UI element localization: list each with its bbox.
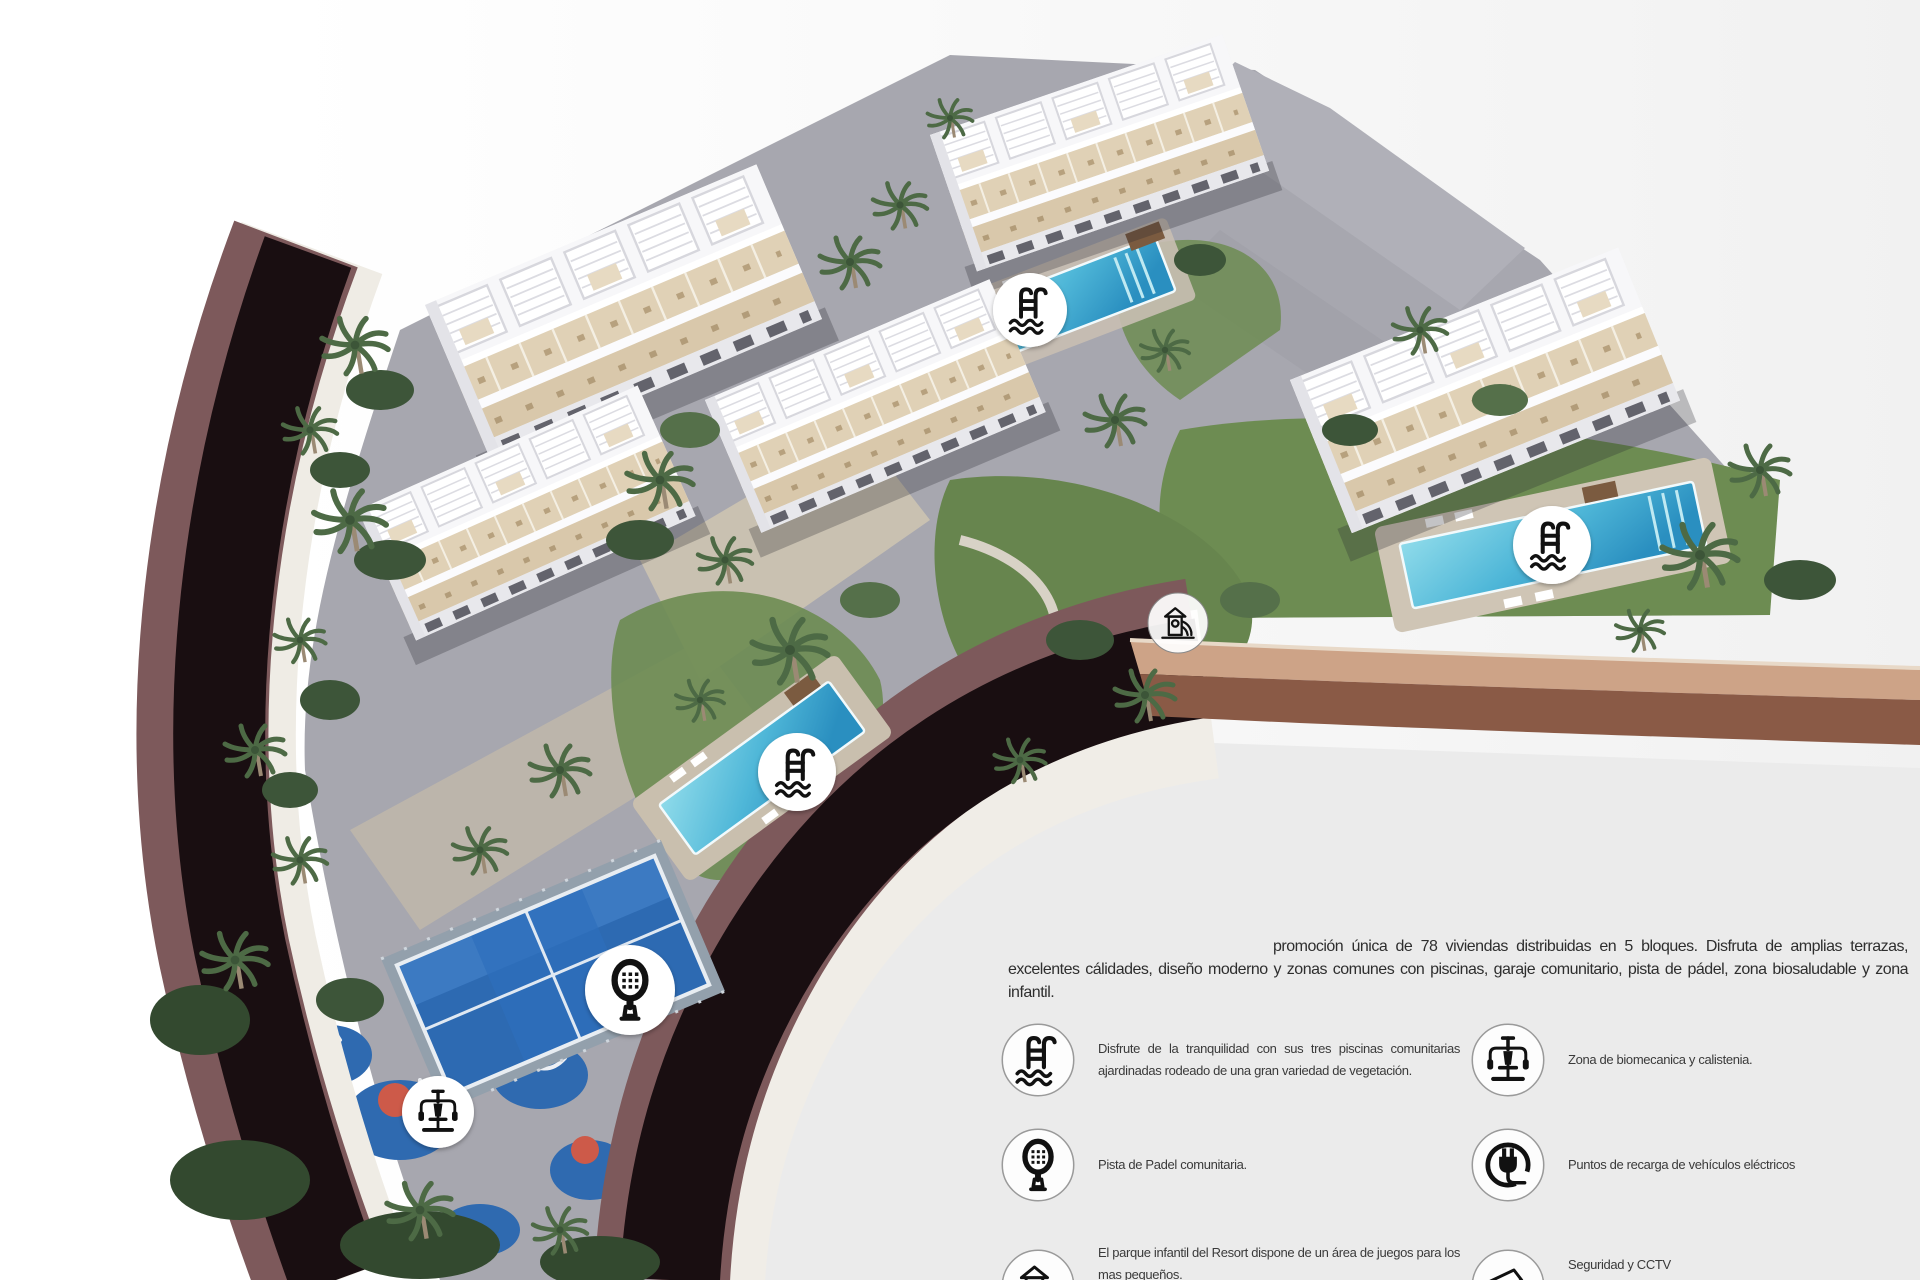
- legend-item-gym: Zona de biomecanica y calistenia.: [1470, 1022, 1920, 1098]
- real-estate-site-plan: promoción única de 78 viviendas distribu…: [0, 0, 1920, 1280]
- promo-paragraph: promoción única de 78 viviendas distribu…: [1008, 935, 1908, 1004]
- legend-cctv-icon: [1470, 1248, 1546, 1280]
- legend-cctv-text: Seguridad y CCTV: [1568, 1254, 1920, 1276]
- legend-item-padel: Pista de Padel comunitaria.: [1000, 1127, 1460, 1203]
- legend-playground-text: El parque infantil del Resort dispone de…: [1098, 1242, 1460, 1280]
- legend-item-pools: Disfrute de la tranquilidad con sus tres…: [1000, 1022, 1460, 1098]
- padel-badge: [585, 945, 675, 1035]
- legend-gym-text: Zona de biomecanica y calistenia.: [1568, 1049, 1920, 1071]
- legend-plug-text: Puntos de recarga de vehículos eléctrico…: [1568, 1154, 1920, 1176]
- pool-badge-2: [1513, 506, 1591, 584]
- legend-playground-icon: [1000, 1248, 1076, 1280]
- legend-padel-icon: [1000, 1127, 1076, 1203]
- legend-item-ev-charging: Puntos de recarga de vehículos eléctrico…: [1470, 1127, 1920, 1203]
- legend-pool-text: Disfrute de la tranquilidad con sus tres…: [1098, 1038, 1460, 1082]
- legend-pool-icon: [1000, 1022, 1076, 1098]
- legend-item-playground: El parque infantil del Resort dispone de…: [1000, 1240, 1460, 1280]
- legend-gym-icon: [1470, 1022, 1546, 1098]
- legend-item-security: Seguridad y CCTV: [1470, 1240, 1920, 1280]
- playground-badge: [1148, 593, 1208, 653]
- gym-badge: [402, 1076, 474, 1148]
- legend-padel-text: Pista de Padel comunitaria.: [1098, 1154, 1460, 1176]
- pool-badge-1: [993, 273, 1067, 347]
- legend-plug-icon: [1470, 1127, 1546, 1203]
- pool-badge-3: [758, 733, 836, 811]
